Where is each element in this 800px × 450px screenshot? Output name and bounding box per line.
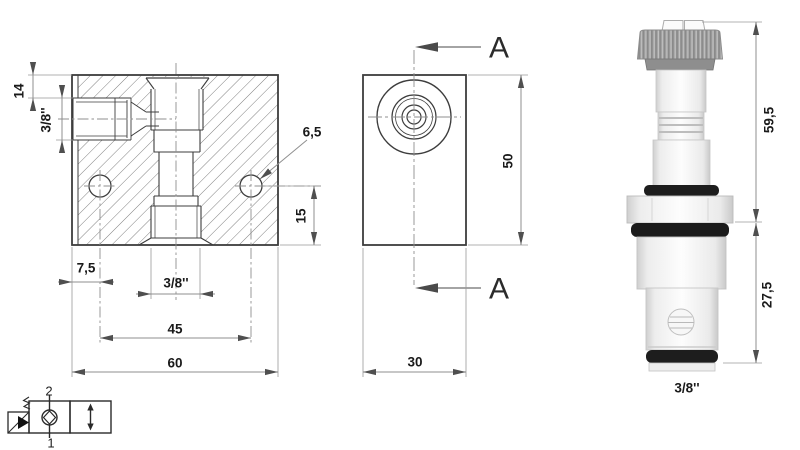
dim-45-label: 45 [167,322,183,337]
upper-stem [656,70,706,112]
o-ring-middle [631,223,729,237]
o-ring-bottom [646,350,718,363]
dim-38-port-label: 3/8'' [39,107,54,132]
flow-arrow-up [87,404,93,411]
dim-60-label: 60 [167,356,182,371]
port-2-label: 2 [45,384,52,399]
hydraulic-symbol: 2 1 [8,384,111,450]
dim-14-label: 14 [12,83,27,99]
valve-photo: 59,5 27,5 3/8'' [627,21,777,396]
dim-30-label: 30 [407,355,422,370]
drawing-sheet: 14 3/8'' 6,5 15 7,5 3/8'' 45 60 A [0,0,800,450]
cartridge-upper-body [637,237,726,289]
section-arrow-bottom [415,283,481,292]
hex-flange [627,196,733,223]
dim-38-thread-label: 3/8'' [674,381,699,396]
side-block-outline [363,75,466,245]
valve-positions [29,395,111,438]
dim-38-bottom-label: 3/8'' [163,276,188,291]
technical-drawing: 14 3/8'' 6,5 15 7,5 3/8'' 45 60 A [0,0,800,450]
section-label-bottom: A [489,273,509,306]
knurled-cap [638,30,723,59]
front-view: 14 3/8'' 6,5 15 7,5 3/8'' 45 60 [12,63,322,377]
mid-body [653,140,710,186]
cap-skirt [645,59,715,70]
top-connector-tab [662,21,705,32]
section-label-top: A [489,32,509,65]
section-arrow-top [415,42,481,51]
flow-arrow-down [87,424,93,431]
dim-50-label: 50 [501,153,516,168]
solenoid-icon [8,412,29,433]
dim-595-label: 59,5 [762,106,777,133]
dim-65-label: 6,5 [303,125,322,140]
port-1-label: 1 [47,436,54,450]
dim-275-label: 27,5 [760,281,775,308]
side-view: A A 50 30 [363,32,528,378]
o-ring-top [644,185,719,196]
dim-15-label: 15 [294,208,309,224]
dim-75-label: 7,5 [77,261,96,276]
nose-tip [649,363,715,371]
